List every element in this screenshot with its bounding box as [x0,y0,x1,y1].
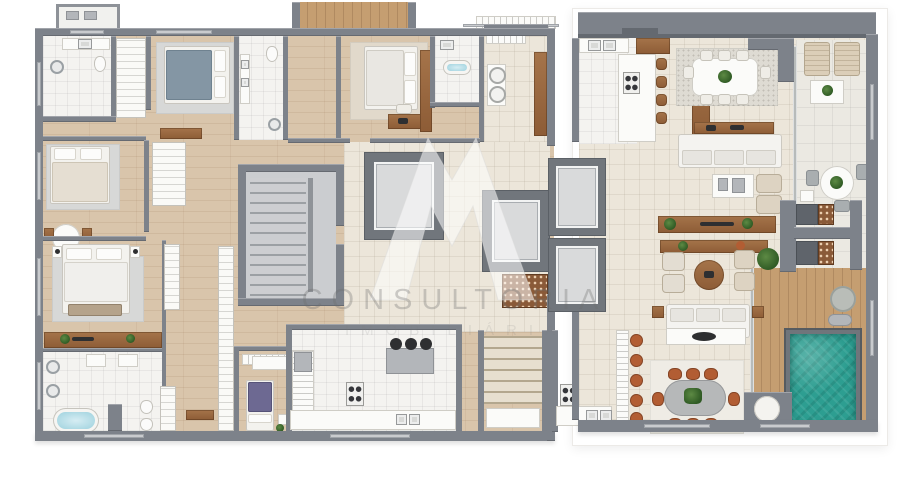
sink [588,40,601,51]
wall-pillar [778,38,794,82]
kitchen-island [618,54,656,142]
bar-stool [630,394,643,407]
wall-sink [86,354,106,367]
window-opening [37,362,41,410]
dining-chair [668,368,682,380]
sink [241,78,249,87]
stair-core-wall [238,164,344,172]
pillow [214,50,226,72]
pool-water [790,334,856,426]
sink [603,40,616,51]
wall [456,324,462,432]
wall [42,236,146,241]
window-opening [37,152,41,200]
watermark-subtitle: IMOBILIÁRIA [0,322,900,339]
shelf-decor [700,222,734,226]
dining-chair [718,94,731,105]
pillow [66,248,92,260]
sink [78,39,92,49]
kitchen-bar [386,348,434,374]
sink [409,414,420,425]
bed-blanket [166,50,212,100]
dryer-drum [489,86,506,103]
stair-flight [250,178,306,234]
lamp [55,249,60,254]
shoe-rack [160,386,176,431]
column [754,396,780,422]
dining-chair [700,50,713,61]
lamp [133,249,138,254]
cooktop [623,72,640,94]
counter [486,408,540,428]
wall [794,227,854,239]
bar-stool [656,94,667,106]
sofa-cushion [714,150,744,165]
elevator-car [796,204,818,225]
laptop [398,118,408,124]
wall [572,38,579,142]
window-opening [37,62,41,106]
table-plant [684,388,702,404]
sink [241,60,249,69]
bathtub-oval [53,408,99,433]
dining-chair [736,50,749,61]
shower-control [46,384,60,398]
bed-blanket [248,382,272,412]
dining-chair [760,66,771,79]
fridge [294,352,312,372]
dining-chair [683,66,694,79]
bar-stool [390,338,402,350]
plant [664,218,676,230]
bar-stool [630,354,643,367]
bath-water [57,412,95,429]
sink [396,414,407,425]
plant [678,241,688,251]
dining-chair [728,392,740,406]
private-staircase [484,336,542,404]
wall [108,404,122,431]
watermark-title: CONSULTORIA [0,284,900,317]
window-opening [870,84,874,140]
bidet [140,418,153,431]
upper-cabinet [636,38,670,54]
perimeter-wall-top [35,28,555,36]
plant [822,85,833,96]
plant [742,218,753,229]
stair-core-wall [336,164,344,226]
lounge-chair [804,42,830,76]
pillow [80,148,102,160]
pillow [96,248,122,260]
elevator-car [796,241,818,265]
elevator-car [556,166,598,228]
wine-rack [818,204,834,225]
plant [830,176,843,189]
dining-chair [718,50,731,61]
wall [850,200,862,270]
dining-chair [652,392,664,406]
bar-stool [405,338,417,350]
cooktop [346,382,364,406]
wall [146,36,151,110]
bar-stool [630,374,643,387]
armchair [734,250,755,269]
wall [288,138,350,143]
perimeter-wall-bottom [578,420,878,432]
picture-frame [732,178,745,193]
window-opening [760,424,810,428]
table-plant [718,70,732,83]
dining-chair [736,94,749,105]
bar-stool [656,112,667,124]
wine-rack [818,241,834,265]
shower-head [50,60,64,74]
laundry-counter [534,52,547,136]
toilet [266,46,278,62]
wall [283,36,288,140]
desk-chair [396,104,412,114]
bar-stool [656,76,667,88]
stair-rail [308,178,313,292]
ac-unit [84,11,97,20]
bar-stool [656,58,667,70]
wall [42,136,146,141]
shower-control [46,360,60,374]
terrace-chair [806,170,819,186]
picture-frame [718,178,728,191]
kitchen-counter [290,410,456,430]
pillow [248,414,272,423]
toilet [94,56,106,72]
floor-plan-canvas: CONSULTORIA IMOBILIÁRIA [0,0,900,477]
pot [736,241,745,250]
wall [42,116,116,122]
pillow [404,52,416,76]
table-decor [704,271,714,278]
washer-drum [489,67,506,84]
sink [440,40,454,50]
hall-wardrobe [152,142,186,206]
armchair [662,252,685,271]
console-decor [730,125,744,130]
dining-chair [686,368,700,380]
window-opening [84,434,144,438]
pillow [54,148,76,160]
bar-stool [420,338,432,350]
wall-sink [118,354,138,367]
sofa-cushion [746,150,776,165]
dining-chair [700,94,713,105]
pillow [404,80,416,104]
console-decor [706,125,716,131]
wall [144,140,149,232]
closet [116,38,146,118]
bar-counter [616,330,629,430]
bed-blanket [52,162,108,202]
terrace-side-table [800,190,814,202]
sofa-cushion [682,150,712,165]
armchair [756,195,782,214]
window-opening [70,30,104,34]
bed-blanket [366,50,404,106]
wall-pillar [622,28,658,38]
mac-monogram-logo [352,128,552,308]
dining-chair [704,368,718,380]
floor-plant [757,248,779,270]
wall [234,346,292,351]
tv-cabinet [160,128,202,139]
wall [234,346,239,432]
lounge-chair [834,42,860,76]
shower-head [268,118,281,131]
ac-unit [66,11,79,20]
bath-water [447,64,467,71]
window-opening [644,424,710,428]
bathtub [443,60,471,75]
armchair [756,174,782,193]
window-opening [330,434,410,438]
window-opening [156,30,212,34]
pillow [214,76,226,98]
bath-bench [186,410,214,420]
toilet [140,400,153,414]
wall [430,102,480,107]
wall [336,36,341,140]
terrace-chair [834,200,850,212]
